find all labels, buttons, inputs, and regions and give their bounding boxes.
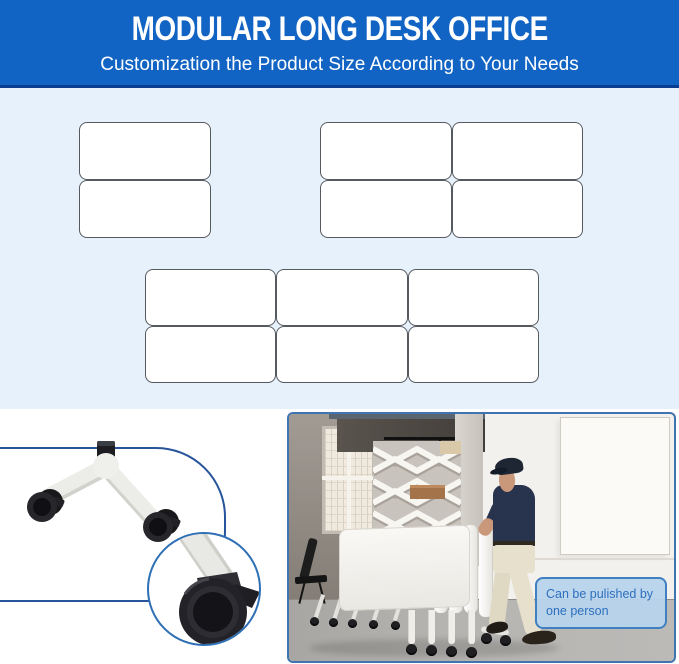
- desk-layout-two: [79, 122, 211, 238]
- wood-accent-box: [410, 485, 445, 499]
- desk-layout-four: [320, 122, 583, 238]
- desk-top: [145, 269, 276, 326]
- person-torso: [493, 485, 535, 545]
- table-leg: [408, 610, 415, 644]
- caster-icon: [310, 617, 319, 626]
- desk-top: [408, 269, 539, 326]
- caster-zoom-callout: [147, 532, 261, 646]
- table-leg: [468, 610, 475, 644]
- banner: MODULAR LONG DESK OFFICE Customization t…: [0, 0, 679, 88]
- caster-icon: [426, 645, 437, 656]
- banner-title: MODULAR LONG DESK OFFICE: [131, 12, 547, 46]
- beige-accent-box: [440, 441, 461, 454]
- caster-wheel-zoom-icon: [149, 534, 259, 644]
- desk-top: [276, 326, 407, 383]
- caster-icon: [369, 620, 378, 629]
- caster-icon: [348, 619, 357, 628]
- desk-layout-six: [145, 269, 539, 383]
- desk-top: [145, 326, 276, 383]
- size-options-section: [0, 88, 679, 409]
- caster-icon: [329, 618, 338, 627]
- caster-icon: [391, 621, 400, 630]
- table-leg: [428, 610, 435, 644]
- lifestyle-photo: Can be pulished by one person: [287, 412, 676, 663]
- desk-top: [320, 180, 452, 238]
- product-infographic: MODULAR LONG DESK OFFICE Customization t…: [0, 0, 679, 664]
- folded-tabletop-front: [339, 525, 470, 612]
- caster-icon: [481, 633, 492, 644]
- caster-icon: [500, 635, 511, 646]
- photo-wall-panel: [560, 417, 670, 555]
- banner-subtitle: Customization the Product Size According…: [100, 54, 578, 76]
- table-leg: [448, 610, 455, 644]
- desk-top: [79, 122, 211, 180]
- caster-icon: [466, 647, 477, 658]
- desk-top: [452, 122, 584, 180]
- desk-top: [408, 326, 539, 383]
- caster-icon: [446, 646, 457, 657]
- desk-top: [79, 180, 211, 238]
- desk-top: [276, 269, 407, 326]
- caption-label: Can be pulished by one person: [535, 577, 667, 629]
- desk-top: [452, 180, 584, 238]
- desk-top: [320, 122, 452, 180]
- caster-icon: [406, 644, 417, 655]
